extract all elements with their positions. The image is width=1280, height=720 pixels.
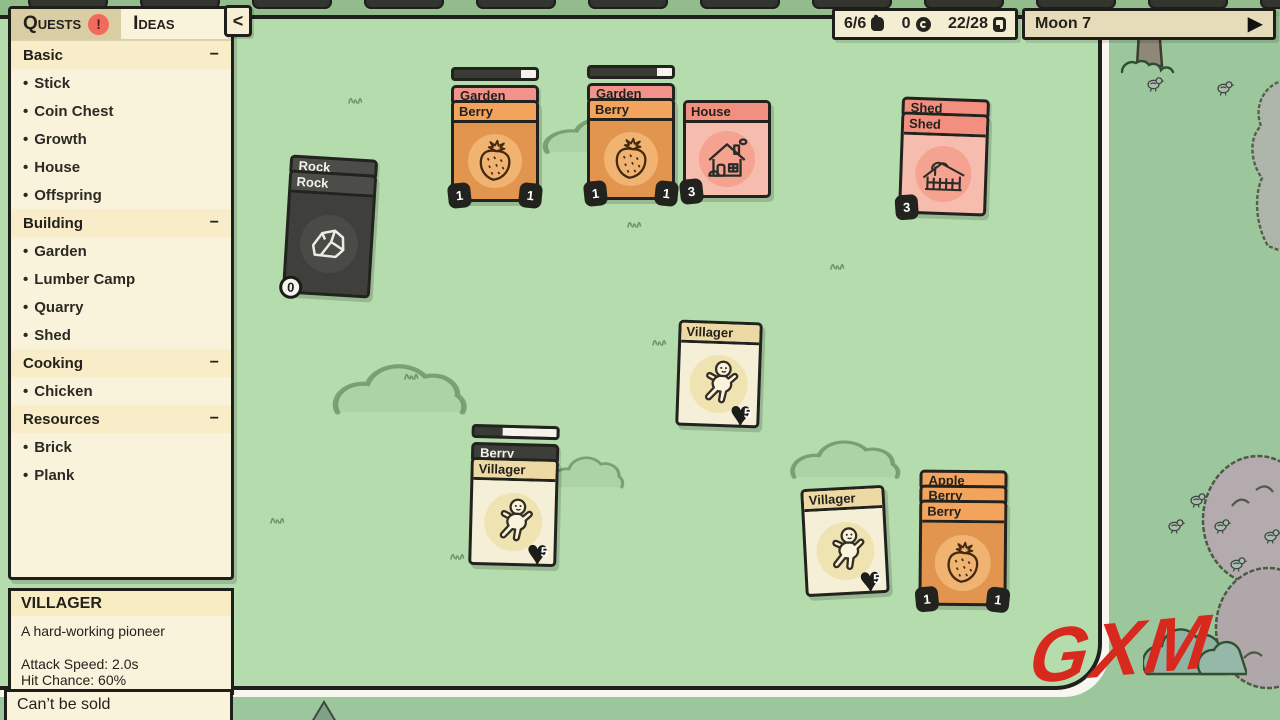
grass-tuft-icon (652, 336, 668, 347)
card-title-villager[interactable]: Villager (473, 460, 555, 482)
card-stack-rock[interactable]: Rock Rock 0 (282, 154, 378, 298)
card-berry[interactable]: Berry 1 1 (587, 98, 675, 200)
play-button[interactable]: ▶ (1248, 14, 1263, 34)
tab-ideas[interactable]: Ideas (121, 9, 186, 39)
value-badge: 1 (583, 180, 608, 207)
card-stack-apple-berry-berry[interactable]: Apple Berry Berry 1 1 (918, 470, 1007, 607)
quest-item-lumber-camp[interactable]: •Lumber Camp (11, 265, 231, 293)
bullet-icon: • (23, 467, 28, 484)
bird-icon (1262, 528, 1280, 544)
sidebar-collapse-button[interactable]: < (224, 5, 252, 37)
quest-item-shed[interactable]: •Shed (11, 321, 231, 349)
rock-icon (305, 222, 353, 267)
card-info-panel: VILLAGER A hard-working pioneer Attack S… (8, 588, 234, 695)
quest-item-garden[interactable]: •Garden (11, 237, 231, 265)
play-icon: ▶ (1248, 13, 1263, 35)
bullet-icon: • (23, 159, 28, 176)
coin-counter: 0 (902, 15, 931, 33)
mountain-icon (310, 700, 338, 720)
resource-counters: 6/6 0 22/28 (832, 8, 1018, 40)
bullet-icon: • (23, 299, 28, 316)
food-icon (871, 17, 884, 31)
bird-icon (1188, 492, 1208, 508)
tab-ideas-label: Ideas (133, 9, 174, 39)
progress-fill (521, 70, 536, 78)
card-title-berry[interactable]: Berry (922, 503, 1004, 524)
house-icon (702, 137, 752, 181)
moon-label: Moon 7 (1035, 15, 1091, 33)
value-badge: 3 (679, 178, 704, 205)
card-stack-berry-bush-villager[interactable]: Berry Bush Villager ♥ 5 (468, 424, 560, 567)
game-screen: Rock Rock 0 Garden Berry (0, 0, 1280, 720)
collapse-minus-icon: − (210, 214, 219, 232)
info-title: VILLAGER (11, 591, 231, 616)
gxm-watermark: GXM (1025, 597, 1217, 701)
card-counter: 22/28 (948, 15, 1006, 33)
quest-item-growth[interactable]: •Growth (11, 125, 231, 153)
bullet-icon: • (23, 439, 28, 456)
bullet-icon: • (23, 327, 28, 344)
bullet-icon: • (23, 243, 28, 260)
value-badge: 1 (985, 586, 1011, 613)
top-slot-tab (700, 0, 780, 9)
collapse-minus-icon: − (210, 46, 219, 64)
card-title-house[interactable]: House (686, 103, 768, 123)
quest-section-cooking[interactable]: Cooking− (11, 349, 231, 377)
card-title-berry[interactable]: Berry (590, 101, 672, 121)
quest-section-building[interactable]: Building− (11, 209, 231, 237)
card-villager[interactable]: Villager ♥ 5 (800, 485, 890, 597)
top-slot-tab (364, 0, 444, 9)
info-stat-attack-speed: Attack Speed: 2.0s (11, 656, 231, 672)
quest-panel: Quests ! Ideas Basic− •Stick •Coin Chest… (8, 6, 234, 580)
quest-item-offspring[interactable]: •Offspring (11, 181, 231, 209)
progress-fill (657, 68, 672, 76)
info-stat-hit-chance: Hit Chance: 60% (11, 672, 231, 688)
quest-section-basic[interactable]: Basic− (11, 41, 231, 69)
rock-formation-icon (1240, 76, 1280, 271)
quest-item-quarry[interactable]: •Quarry (11, 293, 231, 321)
grass-tuft-icon (450, 550, 466, 561)
value-badge: 1 (914, 586, 939, 613)
panel-tabs: Quests ! Ideas (11, 9, 231, 41)
value-badge: 3 (894, 194, 919, 221)
quest-item-coin-chest[interactable]: •Coin Chest (11, 97, 231, 125)
bullet-icon: • (23, 383, 28, 400)
top-slot-tab (476, 0, 556, 9)
value-badge: 1 (447, 182, 472, 209)
shed-icon (918, 152, 969, 196)
strawberry-icon (474, 138, 516, 184)
bullet-icon: • (23, 103, 28, 120)
card-count-icon (993, 17, 1006, 32)
bird-icon (1166, 518, 1186, 534)
value-badge: 1 (518, 182, 543, 209)
card-villager[interactable]: Villager ♥ 5 (675, 320, 763, 429)
bird-icon (1145, 76, 1165, 92)
top-slot-tab (252, 0, 332, 9)
tab-quests-label: Quests (23, 9, 81, 39)
quest-item-stick[interactable]: •Stick (11, 69, 231, 97)
strawberry-icon (610, 136, 652, 182)
collapse-minus-icon: − (210, 354, 219, 372)
quest-item-chicken[interactable]: •Chicken (11, 377, 231, 405)
bush-icon (330, 348, 470, 420)
quest-item-plank[interactable]: •Plank (11, 461, 231, 489)
quest-item-house[interactable]: •House (11, 153, 231, 181)
card-stack-garden-berry[interactable]: Garden Berry 1 1 (451, 67, 539, 202)
growth-progress-bar (587, 65, 675, 79)
bird-icon (1228, 556, 1248, 572)
alert-badge: ! (88, 14, 109, 35)
bird-icon (1215, 80, 1235, 96)
coin-icon (916, 17, 931, 32)
card-stack-villager[interactable]: Villager ♥ 5 (800, 485, 890, 597)
tab-quests[interactable]: Quests ! (11, 9, 121, 39)
grass-tuft-icon (348, 94, 364, 105)
collapse-minus-icon: − (210, 410, 219, 428)
health-badge: ♥ 5 (526, 539, 563, 576)
card-berry[interactable]: Berry 1 1 (918, 500, 1007, 607)
quest-section-resources[interactable]: Resources− (11, 405, 231, 433)
health-badge: ♥ 5 (858, 565, 896, 603)
bullet-icon: • (23, 75, 28, 92)
value-badge: 1 (654, 180, 679, 207)
card-villager[interactable]: Villager ♥ 5 (468, 457, 559, 567)
health-badge: ♥ 5 (729, 400, 766, 437)
food-counter: 6/6 (844, 15, 884, 33)
card-title-berry[interactable]: Berry (454, 103, 536, 123)
card-stack-shed[interactable]: Shed Shed 3 (898, 97, 990, 217)
card-house[interactable]: House 3 (683, 100, 771, 198)
bullet-icon: • (23, 187, 28, 204)
cant-sell-tooltip: Can’t be sold (4, 689, 233, 720)
card-rock[interactable]: Rock 0 (282, 169, 377, 298)
info-description: A hard-working pioneer (11, 616, 231, 639)
bush-icon (548, 446, 626, 492)
harvest-progress-bar (471, 424, 559, 440)
grass-tuft-icon (627, 218, 643, 229)
card-title-villager[interactable]: Villager (681, 323, 760, 346)
moon-timer: Moon 7 ▶ (1022, 8, 1276, 40)
bullet-icon: • (23, 131, 28, 148)
card-stack-villager[interactable]: Villager ♥ 5 (675, 320, 763, 429)
grass-tuft-icon (404, 370, 420, 381)
chevron-left-icon: < (233, 11, 244, 32)
progress-fill (502, 428, 556, 437)
card-berry[interactable]: Berry 1 1 (451, 100, 539, 202)
card-stack-garden-berry[interactable]: Garden Berry 1 1 (587, 65, 675, 200)
grass-tuft-icon (270, 514, 286, 525)
card-stack-house[interactable]: House 3 (683, 100, 771, 198)
bullet-icon: • (23, 271, 28, 288)
bird-icon (1212, 518, 1232, 534)
quest-item-brick[interactable]: •Brick (11, 433, 231, 461)
card-shed[interactable]: Shed 3 (898, 111, 990, 216)
top-slot-tab (588, 0, 668, 9)
strawberry-icon (942, 540, 984, 586)
bush-icon (788, 428, 903, 483)
grass-tuft-icon (830, 260, 846, 271)
growth-progress-bar (451, 67, 539, 81)
